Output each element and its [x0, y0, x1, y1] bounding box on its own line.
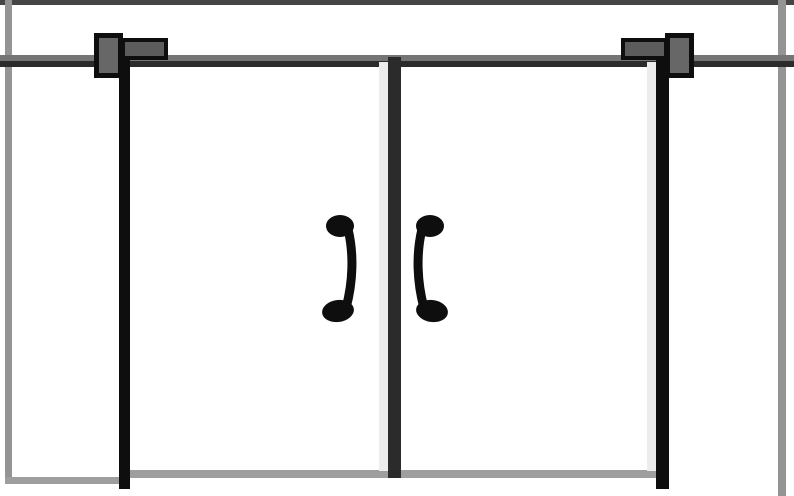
- left-door-closer-icon: [94, 33, 123, 78]
- left-door-hinge-stile: [119, 57, 130, 489]
- right-door-handle-icon: [408, 210, 452, 328]
- handle-top-knob: [326, 215, 354, 237]
- handle-grip-bar: [346, 229, 352, 308]
- handle-grip-bar: [418, 229, 424, 308]
- left-door-handle-icon: [318, 210, 362, 328]
- right-door-hinge-stile: [656, 57, 669, 489]
- right-wall-line: [778, 0, 786, 496]
- right-door-closer-icon: [665, 33, 694, 78]
- handle-top-knob: [416, 215, 444, 237]
- center-edge-highlight: [379, 62, 388, 471]
- left-door-closer-arm-icon: [121, 38, 168, 60]
- left-wall-line: [5, 0, 12, 484]
- center-meeting-stile: [388, 57, 401, 478]
- left-wall-floor-line: [5, 477, 123, 484]
- double-door-elevation: [0, 0, 794, 496]
- top-wall-line: [0, 0, 794, 5]
- right-edge-highlight: [647, 62, 656, 471]
- right-door-closer-arm-icon: [621, 38, 668, 60]
